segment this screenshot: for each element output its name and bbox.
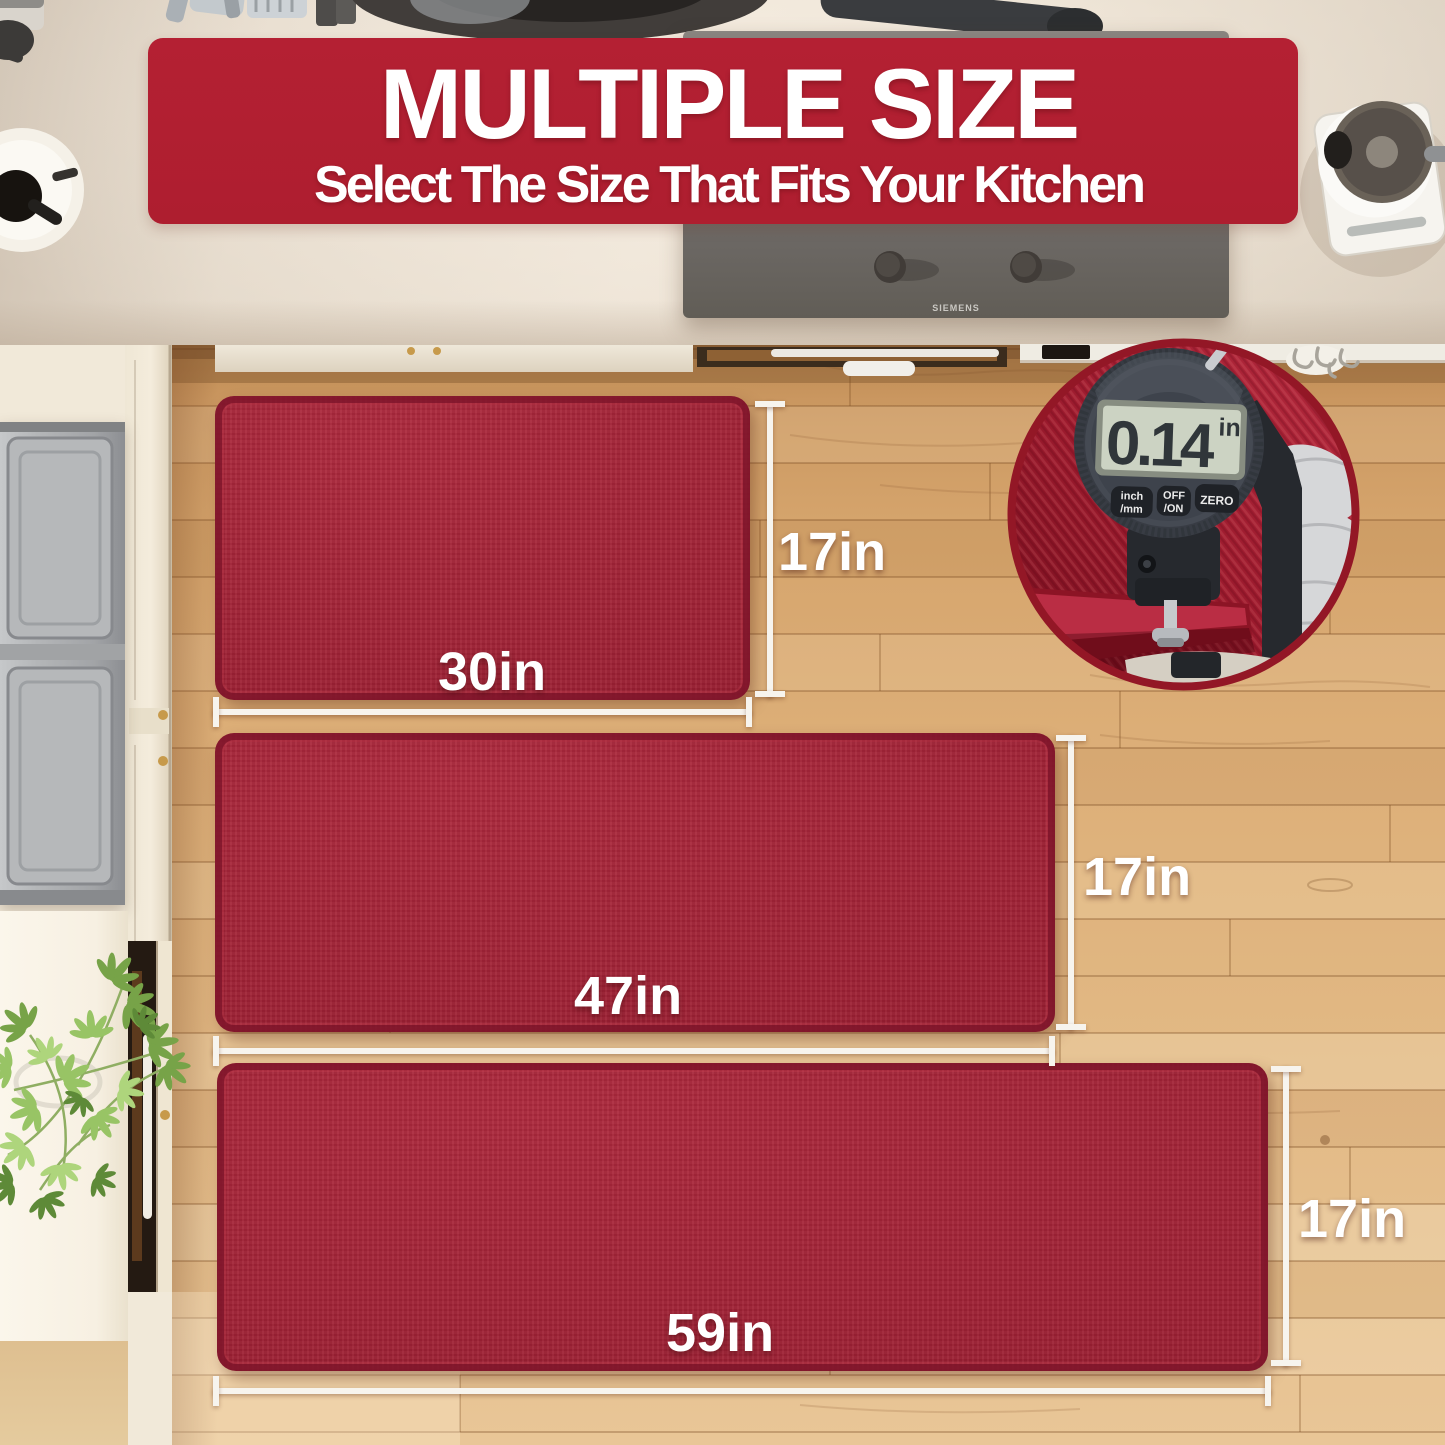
svg-text:0.14: 0.14 bbox=[1105, 409, 1217, 482]
svg-text:SIEMENS: SIEMENS bbox=[932, 303, 980, 313]
svg-text:inch: inch bbox=[1120, 490, 1143, 503]
svg-text:OFF: OFF bbox=[1163, 490, 1186, 503]
svg-text:/ON: /ON bbox=[1164, 503, 1184, 516]
svg-text:/mm: /mm bbox=[1120, 503, 1143, 516]
svg-text:in: in bbox=[1218, 414, 1241, 443]
svg-text:ZERO: ZERO bbox=[1200, 493, 1234, 508]
